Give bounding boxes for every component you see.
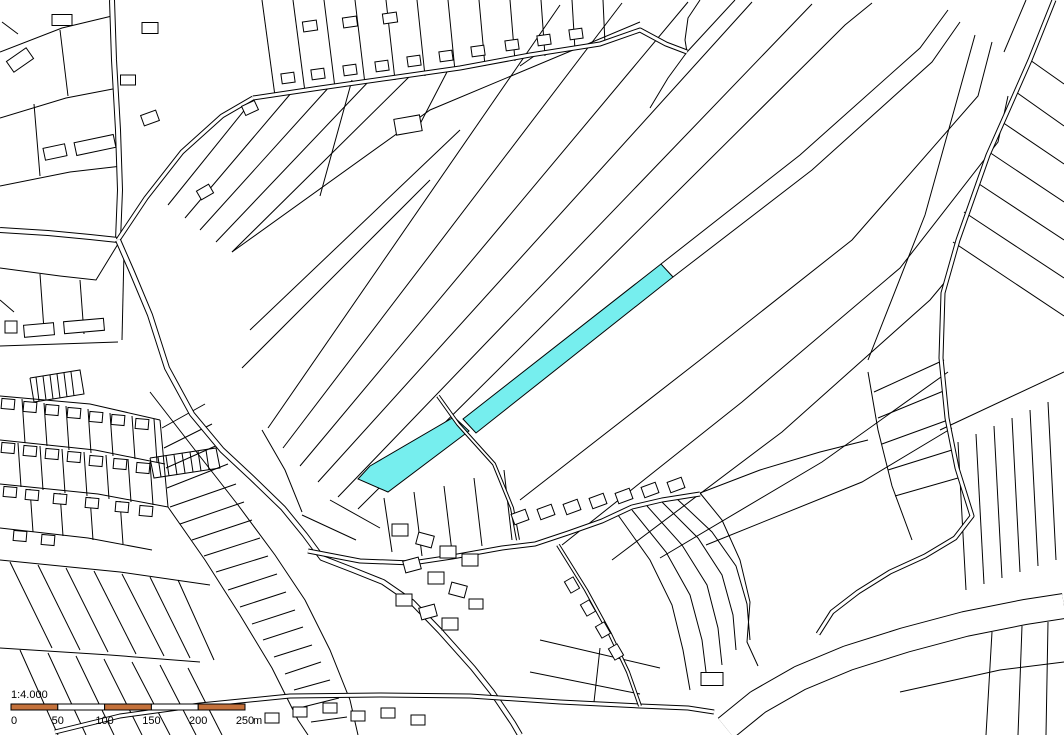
building-footprint — [45, 404, 59, 415]
building-footprint — [53, 493, 67, 504]
map-viewport[interactable]: 1:4.000 050100150200250m — [0, 0, 1064, 735]
building-footprint — [411, 715, 425, 725]
building-footprint — [25, 489, 39, 500]
building-footprint — [302, 20, 317, 32]
building-footprint — [505, 39, 519, 51]
scalebar-tick-label: 50 — [52, 715, 64, 727]
building-footprint — [396, 594, 412, 606]
building-footprint — [113, 458, 127, 469]
scalebar-segment — [58, 704, 105, 710]
scalebar-tick-label: 200 — [189, 715, 207, 727]
building-footprint — [89, 411, 103, 422]
building-footprint — [142, 23, 158, 34]
scalebar-tick-label: 150 — [142, 715, 160, 727]
building-footprint — [439, 50, 453, 62]
building-footprint — [89, 455, 103, 466]
scale-ratio-label: 1:4.000 — [11, 689, 48, 701]
building-footprint — [428, 572, 444, 584]
building-footprint — [382, 12, 397, 24]
building-footprint — [701, 673, 723, 686]
scalebar-tick-label: 0 — [11, 715, 17, 727]
building-footprint — [469, 599, 483, 609]
building-footprint — [537, 34, 551, 46]
building-footprint — [462, 554, 478, 566]
building-footprint — [343, 64, 357, 76]
scalebar-segment — [105, 704, 152, 710]
building-footprint — [3, 486, 17, 497]
building-footprint — [24, 323, 55, 338]
building-footprint — [23, 445, 37, 456]
building-footprint — [67, 451, 81, 462]
building-footprint — [1, 398, 15, 409]
building-footprint — [293, 707, 307, 717]
scalebar-unit-label: m — [253, 715, 262, 727]
building-footprint — [392, 524, 408, 536]
building-footprint — [342, 16, 357, 28]
cadastral-map-canvas[interactable]: 1:4.000 050100150200250m — [0, 0, 1064, 735]
building-footprint — [471, 45, 485, 57]
scalebar-segment — [151, 704, 198, 710]
building-footprint — [323, 703, 337, 713]
building-footprint — [381, 708, 395, 718]
scalebar-tick-label: 250 — [236, 715, 254, 727]
building-footprint — [5, 321, 17, 333]
building-footprint — [265, 713, 279, 723]
building-footprint — [115, 501, 129, 512]
building-footprint — [41, 534, 55, 545]
building-footprint — [407, 55, 421, 67]
building-footprint — [440, 546, 456, 558]
building-footprint — [52, 15, 72, 26]
building-footprint — [139, 505, 153, 516]
building-footprint — [135, 418, 149, 429]
scalebar-segment — [198, 704, 245, 710]
scalebar-tick-label: 100 — [95, 715, 113, 727]
building-footprint — [1, 442, 15, 453]
building-footprint — [136, 462, 150, 473]
scalebar-segment — [11, 704, 58, 710]
building-footprint — [375, 60, 389, 72]
building-footprint — [311, 68, 325, 80]
building-footprint — [569, 28, 583, 40]
building-footprint — [351, 711, 365, 721]
building-footprint — [23, 401, 37, 412]
building-footprint — [67, 407, 81, 418]
building-footprint — [281, 72, 295, 84]
building-footprint — [85, 497, 99, 508]
building-footprint — [121, 75, 136, 85]
building-footprint — [111, 414, 125, 425]
building-footprint — [45, 448, 59, 459]
building-footprint — [13, 530, 27, 541]
building-footprint — [442, 618, 458, 630]
